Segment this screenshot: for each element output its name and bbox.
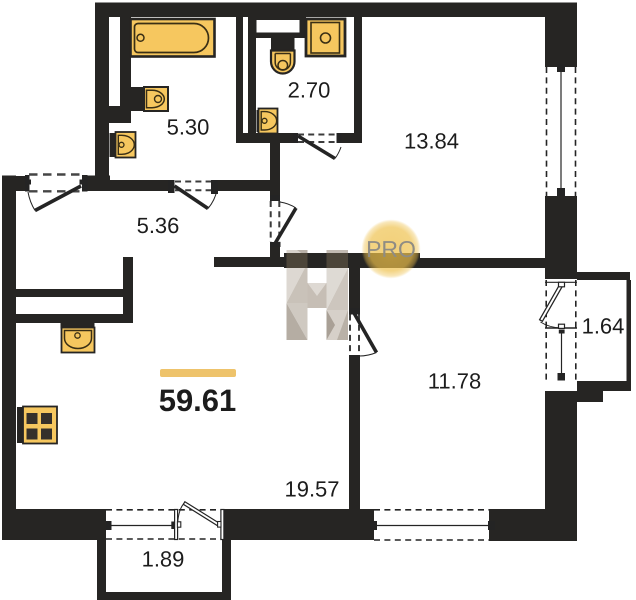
svg-text:5.36: 5.36	[137, 213, 180, 238]
svg-text:1.89: 1.89	[142, 547, 185, 572]
svg-text:13.84: 13.84	[404, 129, 459, 154]
svg-text:5.30: 5.30	[167, 115, 210, 140]
svg-text:PRO: PRO	[366, 236, 416, 262]
svg-text:2.70: 2.70	[288, 78, 331, 103]
svg-text:1.64: 1.64	[582, 314, 625, 339]
svg-text:59.61: 59.61	[159, 383, 237, 418]
svg-text:19.57: 19.57	[284, 477, 339, 502]
svg-text:11.78: 11.78	[428, 369, 481, 394]
